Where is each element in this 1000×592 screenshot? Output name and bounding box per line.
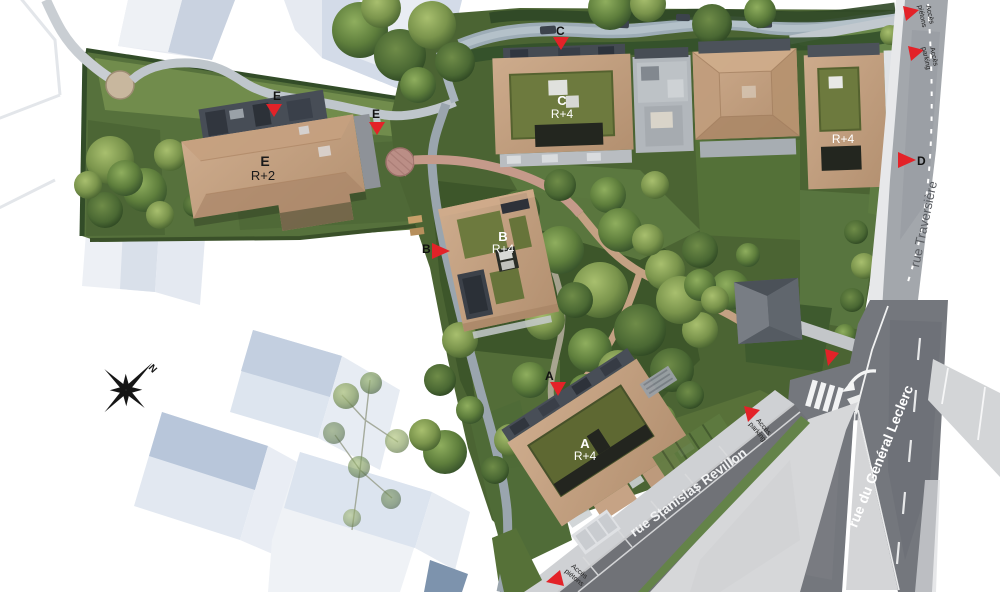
svg-text:R+2: R+2 bbox=[251, 168, 275, 183]
svg-text:R+4: R+4 bbox=[492, 242, 515, 256]
svg-text:E: E bbox=[273, 89, 281, 103]
svg-text:R+4: R+4 bbox=[551, 107, 574, 121]
svg-text:C: C bbox=[556, 24, 565, 38]
svg-text:E: E bbox=[372, 107, 380, 121]
svg-text:R+4: R+4 bbox=[832, 132, 855, 146]
svg-text:B: B bbox=[422, 242, 431, 256]
svg-text:D: D bbox=[917, 154, 926, 168]
svg-text:R+4: R+4 bbox=[574, 449, 597, 463]
svg-text:E: E bbox=[260, 153, 269, 169]
svg-text:A: A bbox=[545, 369, 554, 383]
svg-text:C: C bbox=[557, 93, 567, 108]
